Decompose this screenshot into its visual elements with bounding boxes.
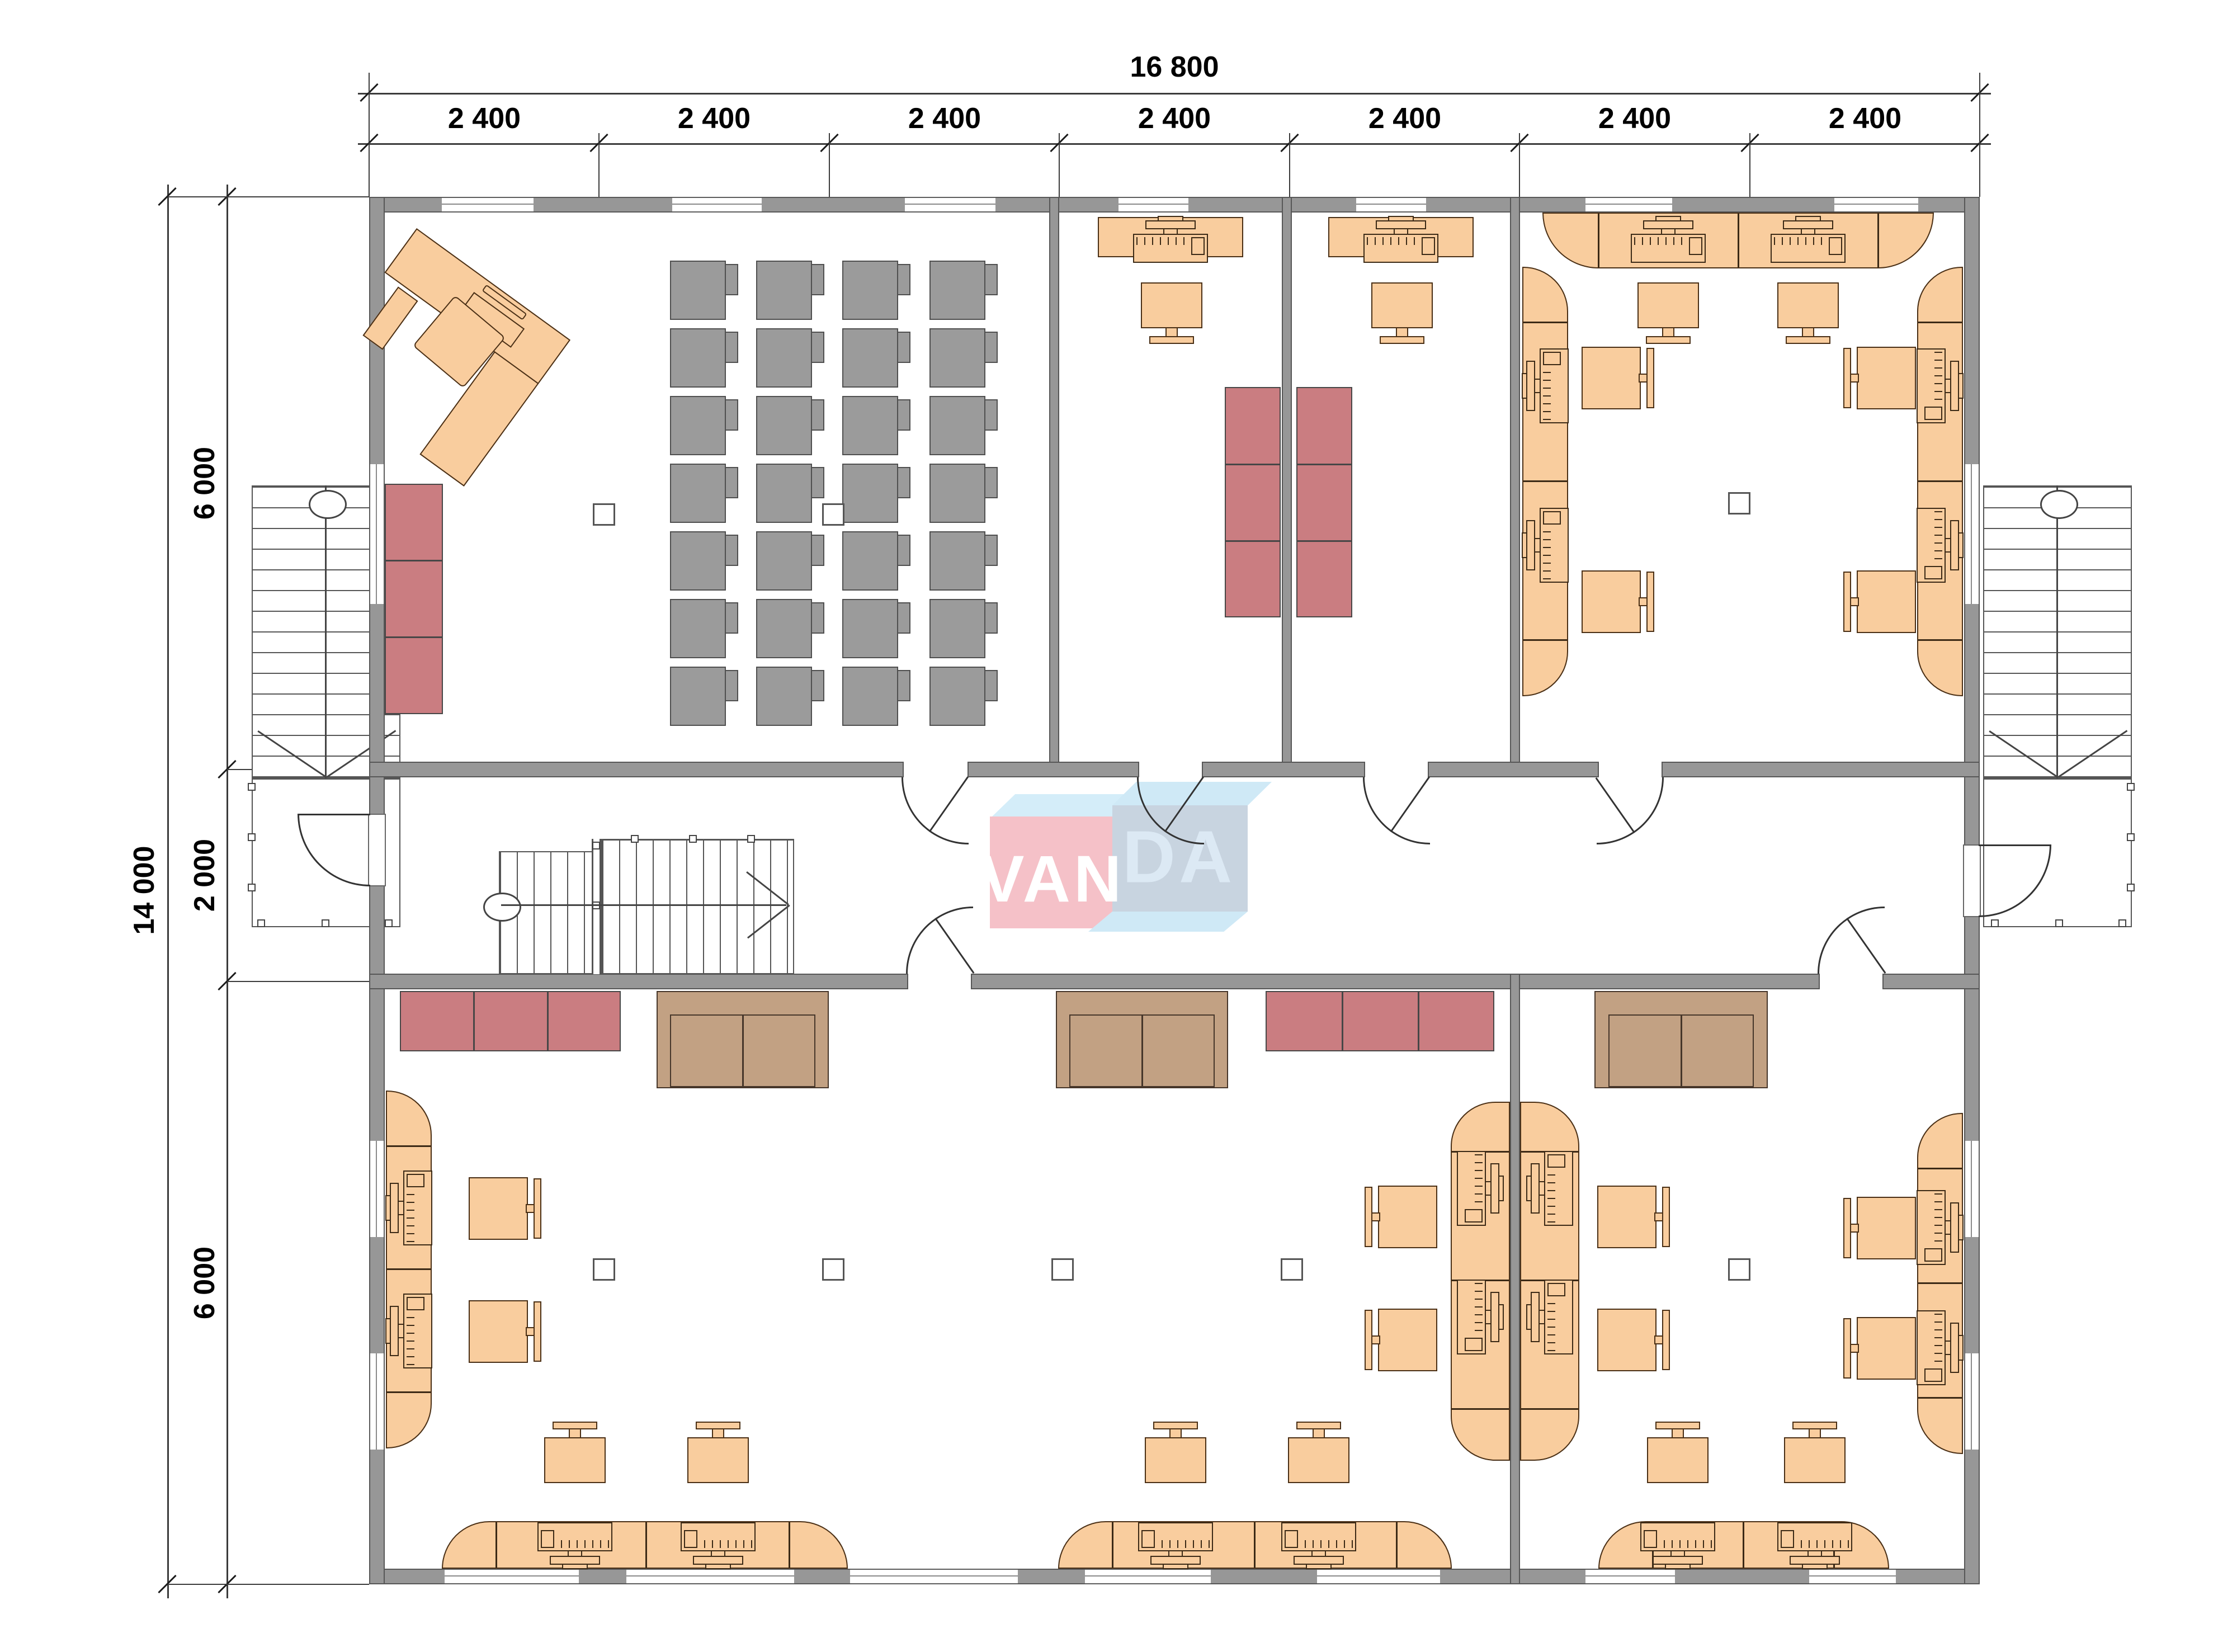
cabinet-divider [1342,992,1343,1050]
stair-center-line [2056,485,2058,778]
student-seat [842,531,898,591]
desk-divider [1918,1397,1962,1399]
column [593,1258,615,1281]
student-seat [756,261,812,320]
desk-divider [1523,480,1567,482]
desk-divider [789,1522,790,1568]
student-seat [756,531,812,591]
door-panel [368,814,386,886]
student-seat [756,464,812,523]
dim-label-6000: 6 000 [188,447,221,520]
task-chair [1784,1420,1846,1483]
table-divider [1297,464,1351,465]
door-swing-arc [902,777,969,844]
student-seat [756,667,812,726]
window [369,1141,385,1237]
computer-workstation [385,1170,432,1245]
stair-start-circle [483,893,521,922]
floor-plan: 16 800 2 400 2 400 2 400 2 400 2 400 2 4… [0,0,2237,1652]
computer-workstation [1522,508,1569,583]
desk-divider [495,1522,497,1568]
computer-workstation [1771,216,1846,263]
desk-divider [1877,214,1879,267]
dim-label-2400: 2 400 [1598,102,1671,135]
task-chair [1647,1420,1709,1483]
extension-line [227,981,369,982]
computer-workstation [1281,1522,1356,1569]
dim-line-segments-left [226,185,228,1598]
railing-post [2055,919,2063,927]
extension-line [1519,133,1520,197]
railing-post [2127,833,2135,841]
wall-office-office [1282,197,1292,777]
task-chair [1843,1197,1916,1259]
window [850,1569,1018,1584]
window [1964,1353,1980,1450]
student-seat [670,261,726,320]
railing-post [385,919,393,927]
window [1085,1569,1211,1584]
column [822,1258,844,1281]
computer-workstation [385,1294,432,1368]
student-seat [670,328,726,388]
window [1964,464,1980,604]
desk-divider [1523,322,1567,323]
cabinet-divider [386,560,442,561]
red-cabinet [1266,991,1494,1051]
monitor-icon [1777,282,1839,345]
sofa-divider [1681,1016,1682,1086]
desk-divider [1743,1522,1744,1568]
computer-workstation [1917,1310,1964,1385]
cabinet-divider [1418,992,1419,1050]
railing-post [689,835,697,843]
stair-direction-line [501,904,786,906]
desk-divider [1521,1408,1578,1410]
student-seat [756,396,812,455]
dim-label-total-width: 16 800 [1130,50,1219,84]
extension-line [1289,133,1290,197]
dim-label-6000: 6 000 [188,1247,221,1319]
desk-divider [1918,322,1962,323]
wall-classroom-office [1049,197,1059,777]
column [1728,1258,1750,1281]
door-swing-arc [906,907,973,974]
student-seat [670,531,726,591]
window [369,464,385,604]
door-opening [907,974,972,989]
computer-workstation [1777,1522,1852,1569]
cabinet-divider [473,992,475,1050]
red-meeting-table [1225,387,1281,617]
extension-line [829,133,830,197]
desk-divider [387,1268,431,1270]
desk-divider [1738,214,1739,267]
desk-divider [645,1522,647,1568]
stair-center-line [325,485,327,778]
task-chair [1288,1420,1349,1483]
wall-corridor-bottom [369,974,1980,989]
door-opening [903,762,969,777]
desk-divider [1396,1522,1398,1568]
stair-start-circle [2040,490,2078,519]
dim-label-2400: 2 400 [1829,102,1901,135]
red-cabinet [400,991,621,1051]
student-seat [842,667,898,726]
extension-line [168,1584,369,1585]
student-seat [842,464,898,523]
door-opening [1598,762,1663,777]
task-chair [1843,347,1916,409]
task-chair [1145,1420,1206,1483]
computer-workstation [1133,216,1208,263]
door-swing-arc [1597,777,1664,844]
task-chair [469,1177,541,1240]
computer-workstation [1917,348,1964,423]
desk-divider [1598,214,1599,267]
window [1118,197,1188,213]
window [1809,1569,1896,1584]
red-meeting-table [1296,387,1352,617]
computer-workstation [1138,1522,1213,1569]
extension-line [598,133,600,197]
window [369,1353,385,1450]
task-chair [1365,1186,1437,1248]
student-seat [929,328,985,388]
window [1834,197,1918,213]
desk-divider [1112,1522,1113,1568]
task-chair [544,1420,606,1483]
extension-line [1059,133,1060,197]
task-chair [1843,570,1916,633]
monitor-icon [1371,282,1433,345]
computer-workstation [1457,1280,1504,1354]
teacher-desk-return [419,351,539,487]
student-seat [670,464,726,523]
column [1051,1258,1074,1281]
window [1356,197,1426,213]
dim-label-2400: 2 400 [1368,102,1441,135]
computer-workstation [1522,348,1569,423]
extension-line [168,196,369,197]
desk-divider [1918,1168,1962,1169]
extension-line [1749,133,1750,197]
computer-workstation [1457,1151,1504,1226]
window [1585,197,1672,213]
dim-line-total-height [167,185,169,1598]
task-chair [1582,347,1654,409]
cabinet-divider [547,992,549,1050]
door-opening [1138,762,1203,777]
door-leaf [1979,844,2051,846]
computer-workstation [1917,508,1964,583]
computer-workstation [1640,1522,1715,1569]
dim-label-2000: 2 000 [188,839,221,912]
column [593,503,615,526]
extension-line [1979,73,1980,197]
task-chair [1597,1309,1670,1371]
column [822,503,844,526]
student-seat [842,261,898,320]
student-seat [929,396,985,455]
corridor-stairs-upper-flight [601,839,794,974]
door-opening [1819,974,1884,989]
task-chair [1582,570,1654,633]
railing-post [2127,783,2135,791]
cabinet-divider [386,636,442,638]
dim-label-2400: 2 400 [1138,102,1211,135]
computer-workstation [1917,1190,1964,1265]
watermark-text-van: VAN [980,841,1125,917]
railing-post [322,919,329,927]
table-divider [1226,464,1280,465]
window [1317,1569,1440,1584]
student-seat [670,396,726,455]
desk-divider [1254,1522,1256,1568]
door-swing-arc [1363,777,1430,844]
student-seat [929,261,985,320]
student-seat [842,599,898,658]
extension-line [369,73,370,197]
railing-post [248,783,256,791]
desk-run-bottom [442,1521,848,1569]
student-seat [756,599,812,658]
student-seat [670,667,726,726]
stair-start-circle [309,490,347,519]
student-seat [842,396,898,455]
student-seat [670,599,726,658]
computer-workstation [537,1522,612,1569]
student-seat [842,328,898,388]
task-chair [1597,1186,1670,1248]
railing-post [1991,919,1999,927]
column [1728,492,1750,515]
student-seat [929,667,985,726]
window [442,197,534,213]
table-divider [1226,540,1280,542]
monitor-icon [1637,282,1699,345]
window [445,1569,579,1584]
monitor-icon [1141,282,1202,345]
computer-workstation [1631,216,1706,263]
railing-post [257,919,265,927]
task-chair [687,1420,749,1483]
window [672,197,762,213]
railing-post [631,835,639,843]
desk-divider [1918,1282,1962,1284]
wall-openoffice-divider [1510,974,1520,1584]
student-seat [756,328,812,388]
computer-workstation [1526,1151,1573,1226]
task-chair [1365,1309,1437,1371]
door-leaf [298,814,370,815]
desk-divider [387,1145,431,1147]
railing-post [248,884,256,891]
railing-post [592,842,600,849]
railing-post [248,833,256,841]
door-opening [1364,762,1429,777]
dim-label-2400: 2 400 [908,102,981,135]
window [905,197,995,213]
window [626,1569,794,1584]
wall-office-openoffice-top [1510,197,1520,777]
dim-label-total-height: 14 000 [128,846,161,934]
desk-divider [1452,1408,1509,1410]
desk-divider [1523,639,1567,641]
table-divider [1297,540,1351,542]
student-seat [929,599,985,658]
computer-workstation [1526,1280,1573,1354]
computer-workstation [681,1522,756,1569]
railing-post [2118,919,2126,927]
student-seat [929,531,985,591]
task-chair [469,1300,541,1363]
dim-label-2400: 2 400 [448,102,521,135]
desk-divider [1918,480,1962,482]
sofa-divider [742,1016,744,1086]
window [1964,1141,1980,1237]
dim-line-total-width [358,93,1991,95]
computer-workstation [1363,216,1438,263]
desk-divider [387,1391,431,1393]
sofa-divider [1141,1016,1143,1086]
dim-label-2400: 2 400 [678,102,751,135]
railing-post [747,835,755,843]
student-seat [929,464,985,523]
column [1281,1258,1303,1281]
task-chair [1843,1317,1916,1380]
railing-post [2127,884,2135,891]
desk-divider [1918,639,1962,641]
red-cabinet [385,484,443,714]
door-swing-arc [1818,907,1885,974]
window [1585,1569,1675,1584]
